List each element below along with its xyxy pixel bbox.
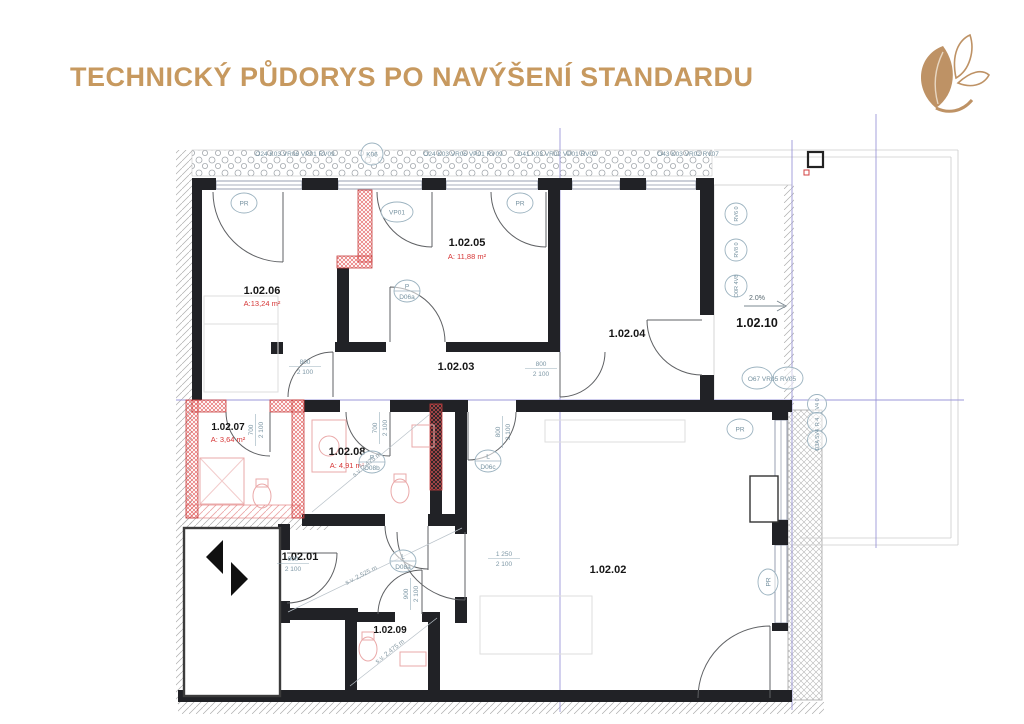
svg-text:D06a: D06a (399, 294, 415, 301)
kitchen-counter (545, 420, 685, 442)
toilet (391, 474, 409, 503)
svg-text:2.0%: 2.0% (749, 295, 765, 302)
svg-text:800: 800 (536, 361, 547, 368)
svg-text:2 100: 2 100 (382, 419, 389, 436)
page: TECHNICKÝ PŮDORYS PO NAVÝŠENÍ STANDARDU (0, 0, 1024, 724)
svg-text:1.02.08: 1.02.08 (329, 446, 366, 458)
svg-text:2 100: 2 100 (505, 423, 512, 440)
toilet (253, 479, 271, 508)
room-label-1-02-05: 1.02.05 A: 11,88 m² (448, 237, 487, 261)
svg-text:PR: PR (515, 201, 524, 208)
svg-text:2 100: 2 100 (413, 585, 420, 602)
elevator-shaft (184, 528, 280, 696)
code-circle: O0R 4V8 (725, 275, 747, 298)
svg-text:RV6 0: RV6 0 (734, 206, 740, 221)
dim-800x2100-rot: 800 2 100 (495, 416, 512, 448)
floor-plan: O24 K03 VR06 VP01 RV09 K06 O24 K03 VR06 … (0, 0, 1024, 724)
sofa (480, 596, 592, 654)
door-tag-d06c: L D06c (475, 450, 501, 472)
svg-text:900: 900 (403, 588, 410, 599)
dim-800x2100: 800 2 100 (525, 361, 557, 378)
svg-text:P: P (405, 284, 409, 291)
svg-text:V4 0: V4 0 (815, 398, 821, 409)
room-label-1-02-02: 1.02.02 (590, 564, 627, 576)
dim-700x2100-rot: 700 2 100 (372, 412, 389, 444)
toilet (359, 632, 377, 661)
svg-text:O3A 5V4: O3A 5V4 (815, 429, 821, 451)
code-circle: R 4 (808, 413, 827, 432)
window (446, 181, 538, 189)
svg-text:L: L (486, 454, 490, 461)
pr-tag: PR (507, 193, 533, 213)
pr-tag: PR (231, 193, 257, 213)
door-tag-d06a: P D06a (394, 280, 420, 302)
window-code: O43 K03 VR02 RV07 (657, 151, 719, 158)
o67-group: O67 VR05 RV05 (742, 367, 803, 389)
slope-annotation: 2.0% (744, 295, 786, 311)
bed (204, 296, 278, 392)
svg-text:K06: K06 (366, 152, 378, 159)
svg-text:RV8 0: RV8 0 (734, 242, 740, 257)
svg-text:O67 VR05 RV05: O67 VR05 RV05 (748, 376, 797, 383)
window (338, 181, 422, 189)
room-label-1-02-07: 1.02.07 A: 3,64 m² (211, 422, 246, 444)
svg-text:D08a: D08a (395, 564, 411, 571)
window (572, 181, 620, 189)
window (216, 181, 302, 189)
svg-text:D06c: D06c (480, 464, 496, 471)
svg-text:2 100: 2 100 (533, 371, 550, 378)
svg-text:O0R 4V8: O0R 4V8 (734, 275, 740, 298)
svg-text:1 250: 1 250 (496, 551, 513, 558)
dim-1250x2100: 1 250 2 100 (488, 551, 520, 568)
code-circle: RV8 0 (725, 239, 747, 261)
height-label: s.v. 2,525 m (344, 565, 378, 587)
door-direction-tags: PR VP01 PR PR PR (231, 193, 778, 595)
window (646, 181, 696, 189)
dim-800x2100: 800 2 100 (289, 359, 321, 376)
pr-tag: PR (727, 419, 753, 439)
room-label-1-02-06: 1.02.06 A:13,24 m² (244, 285, 281, 308)
room-label-1-02-09: 1.02.09 (373, 625, 407, 636)
svg-text:700: 700 (248, 424, 255, 435)
svg-text:2 100: 2 100 (297, 369, 314, 376)
svg-text:A: 3,64 m²: A: 3,64 m² (211, 435, 246, 444)
code-circle: RV6 0 (725, 203, 747, 225)
section-marker (808, 152, 823, 167)
k06-tag: K06 (361, 143, 383, 165)
door-tag-d08a: L D08a (390, 550, 416, 572)
vp01-tag: VP01 (381, 202, 413, 222)
code-circle: V4 0 (808, 395, 827, 414)
dim-700x2100-rot: 700 2 100 (248, 414, 265, 446)
svg-text:1.02.07: 1.02.07 (211, 422, 245, 433)
window-code: O24 K03 VR06 VP01 RV09 (423, 151, 503, 158)
svg-text:R 4: R 4 (815, 418, 821, 427)
room-label-1-02-03: 1.02.03 (438, 361, 475, 373)
svg-text:2 100: 2 100 (258, 421, 265, 438)
pr-tag: PR (758, 569, 778, 595)
svg-text:800: 800 (300, 359, 311, 366)
svg-text:2 100: 2 100 (285, 566, 302, 573)
svg-text:PR: PR (239, 201, 248, 208)
svg-text:PR: PR (735, 427, 744, 434)
dim-900x2100-rot: 900 2 100 (403, 578, 420, 610)
svg-text:PR: PR (766, 577, 773, 586)
svg-text:L: L (401, 554, 405, 561)
svg-text:2 100: 2 100 (496, 561, 513, 568)
svg-text:VP01: VP01 (389, 210, 405, 217)
window-code: O41 K03 VR02 VP01 RV02 (517, 151, 597, 158)
window-code: O24 K03 VR06 VP01 RV09 (255, 151, 335, 158)
svg-text:800: 800 (495, 426, 502, 437)
room-label-1-02-10: 1.02.10 (736, 316, 778, 330)
svg-text:A:13,24 m²: A:13,24 m² (244, 299, 281, 308)
svg-text:1.02.05: 1.02.05 (449, 237, 486, 249)
washbasin (400, 652, 426, 666)
svg-text:1.02.06: 1.02.06 (244, 285, 281, 297)
svg-text:900: 900 (288, 556, 299, 563)
shower (200, 458, 244, 504)
svg-text:700: 700 (372, 422, 379, 433)
column (750, 476, 778, 522)
room-label-1-02-04: 1.02.04 (609, 328, 647, 340)
svg-text:A: 11,88 m²: A: 11,88 m² (448, 252, 487, 261)
slope-arrow-icon (744, 301, 786, 311)
